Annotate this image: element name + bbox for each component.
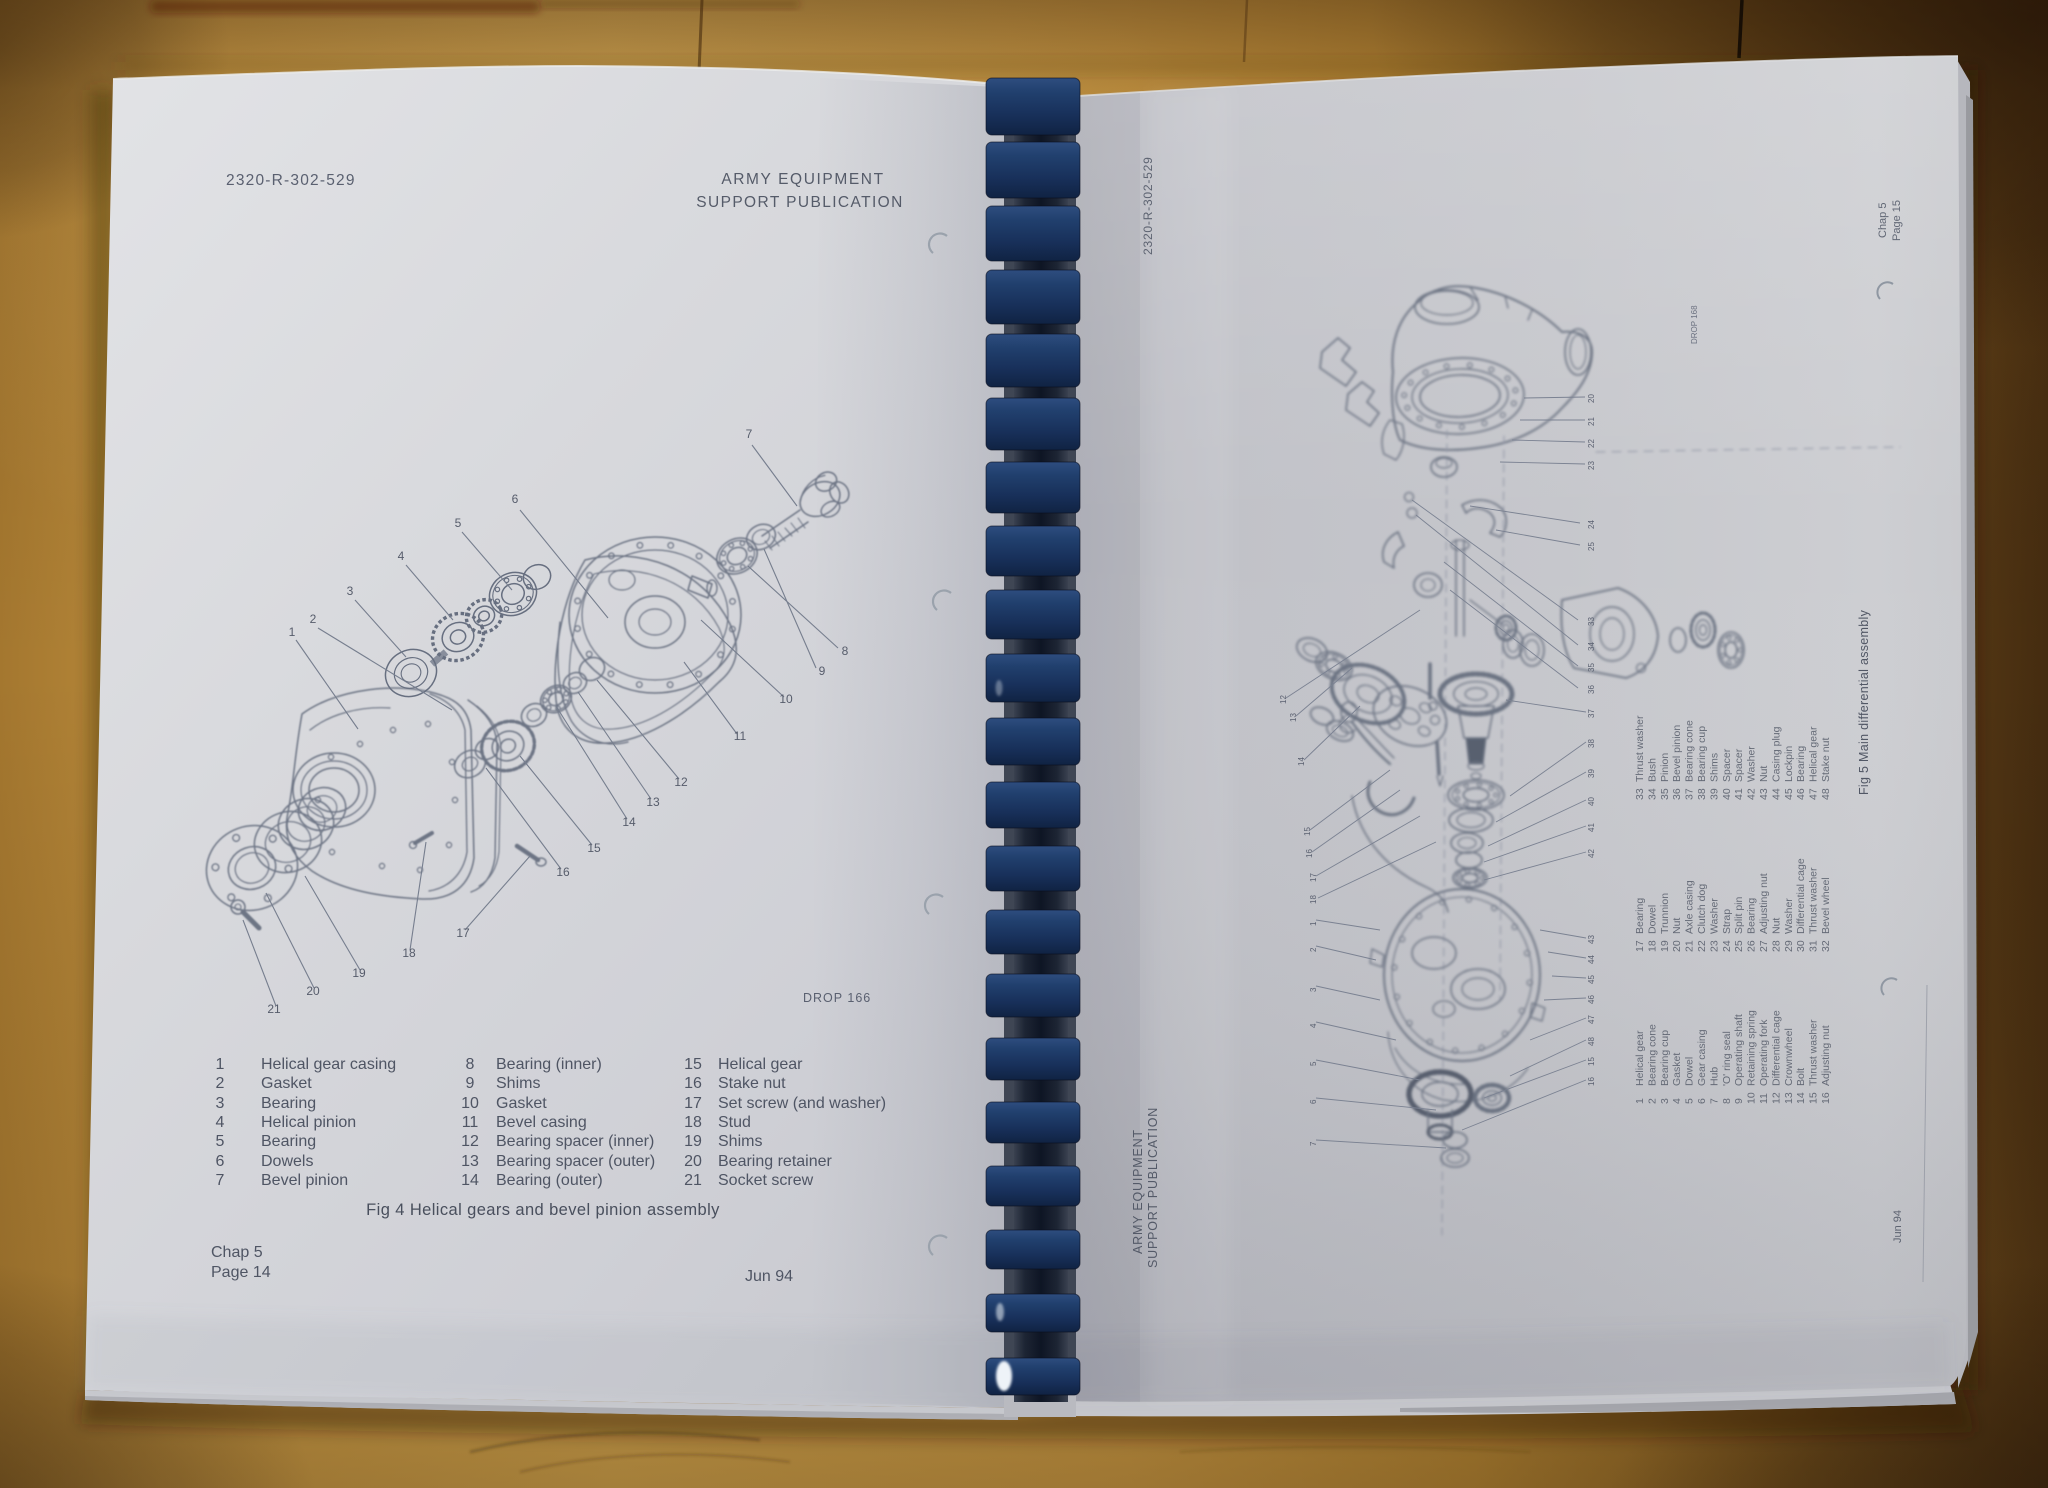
svg-text:24: 24 <box>1721 940 1733 952</box>
svg-text:41: 41 <box>1587 823 1596 832</box>
svg-text:30: 30 <box>1795 940 1807 952</box>
svg-text:39: 39 <box>1587 769 1596 778</box>
svg-text:Set screw (and washer): Set screw (and washer) <box>718 1095 886 1112</box>
svg-text:33: 33 <box>1634 788 1646 800</box>
svg-text:Washer: Washer <box>1708 898 1720 934</box>
svg-text:ARMY EQUIPMENT: ARMY EQUIPMENT <box>1131 1129 1145 1254</box>
svg-text:Split pin: Split pin <box>1733 896 1745 934</box>
svg-text:13: 13 <box>1289 713 1298 722</box>
svg-text:Bearing cone: Bearing cone <box>1684 720 1696 782</box>
svg-text:25: 25 <box>1733 940 1745 952</box>
svg-text:13: 13 <box>1783 1092 1795 1104</box>
svg-text:Clutch dog: Clutch dog <box>1696 884 1708 934</box>
svg-text:Page 15: Page 15 <box>1891 200 1903 241</box>
svg-text:Differential cage: Differential cage <box>1795 858 1807 934</box>
svg-text:21: 21 <box>1587 417 1596 426</box>
svg-text:7: 7 <box>1309 1141 1318 1146</box>
svg-text:11: 11 <box>1758 1093 1770 1104</box>
svg-text:43: 43 <box>1758 788 1770 800</box>
svg-text:Bevel pinion: Bevel pinion <box>1671 725 1683 782</box>
svg-text:12: 12 <box>461 1133 479 1150</box>
svg-text:Bearing cup: Bearing cup <box>1659 1030 1671 1086</box>
svg-text:Chap 5: Chap 5 <box>1877 203 1889 238</box>
svg-text:19: 19 <box>684 1133 702 1150</box>
svg-text:DROP 166: DROP 166 <box>803 991 871 1005</box>
svg-text:6: 6 <box>1309 1099 1318 1104</box>
svg-text:Dowel: Dowel <box>1646 905 1658 934</box>
svg-text:Thrust washer: Thrust washer <box>1634 715 1646 782</box>
svg-text:6: 6 <box>512 492 519 506</box>
svg-text:6: 6 <box>216 1153 225 1170</box>
svg-text:Spacer: Spacer <box>1733 748 1745 782</box>
svg-text:Operating fork: Operating fork <box>1758 1019 1770 1086</box>
svg-text:31: 31 <box>1808 940 1820 952</box>
svg-text:8: 8 <box>466 1056 475 1073</box>
svg-text:4: 4 <box>1309 1023 1318 1028</box>
svg-text:Jun 94: Jun 94 <box>745 1268 793 1285</box>
svg-text:Bevel wheel: Bevel wheel <box>1820 877 1832 934</box>
svg-text:Bearing retainer: Bearing retainer <box>718 1153 833 1170</box>
svg-text:Axle casing: Axle casing <box>1684 880 1696 934</box>
svg-text:Bevel casing: Bevel casing <box>496 1114 587 1131</box>
svg-text:Spacer: Spacer <box>1721 748 1733 782</box>
svg-text:28: 28 <box>1770 940 1782 952</box>
svg-text:20: 20 <box>306 984 320 998</box>
svg-text:8: 8 <box>1721 1098 1733 1104</box>
svg-text:12: 12 <box>1279 695 1288 704</box>
svg-text:45: 45 <box>1783 788 1795 800</box>
svg-text:10: 10 <box>1746 1092 1758 1104</box>
svg-text:3: 3 <box>1309 987 1318 992</box>
svg-text:10: 10 <box>461 1095 479 1112</box>
svg-text:Nut: Nut <box>1758 766 1770 782</box>
svg-text:Bearing (outer): Bearing (outer) <box>496 1172 603 1189</box>
svg-text:19: 19 <box>352 966 366 980</box>
svg-text:Shims: Shims <box>1708 753 1720 782</box>
svg-text:Stud: Stud <box>718 1114 751 1131</box>
svg-text:22: 22 <box>1587 439 1596 448</box>
svg-text:38: 38 <box>1587 739 1596 748</box>
svg-text:13: 13 <box>461 1153 479 1170</box>
svg-text:8: 8 <box>842 644 849 658</box>
svg-text:Retaining spring: Retaining spring <box>1746 1010 1758 1086</box>
svg-text:17: 17 <box>684 1095 702 1112</box>
svg-text:Helical pinion: Helical pinion <box>261 1114 356 1131</box>
svg-text:40: 40 <box>1587 797 1596 806</box>
svg-text:Bearing: Bearing <box>1746 898 1758 934</box>
svg-text:Bearing (inner): Bearing (inner) <box>496 1056 602 1073</box>
svg-text:Strap: Strap <box>1721 909 1733 934</box>
svg-text:18: 18 <box>402 946 416 960</box>
svg-text:45: 45 <box>1587 975 1596 984</box>
svg-text:Helical gear casing: Helical gear casing <box>261 1056 396 1073</box>
svg-text:11: 11 <box>734 729 747 743</box>
svg-text:Bearing: Bearing <box>1634 898 1646 934</box>
svg-text:3: 3 <box>216 1095 225 1112</box>
svg-text:37: 37 <box>1684 788 1696 800</box>
svg-text:21: 21 <box>267 1002 281 1016</box>
svg-text:Lockpin: Lockpin <box>1783 746 1795 782</box>
svg-text:20: 20 <box>1587 394 1596 403</box>
svg-text:36: 36 <box>1671 788 1683 800</box>
svg-text:Fig 5 Main differential assem: Fig 5 Main differential assembly <box>1857 609 1871 795</box>
svg-text:17: 17 <box>1309 873 1318 882</box>
svg-text:44: 44 <box>1587 955 1596 964</box>
svg-text:5: 5 <box>216 1133 225 1150</box>
svg-text:DROP 168: DROP 168 <box>1690 305 1699 344</box>
svg-text:Stake nut: Stake nut <box>1820 738 1832 782</box>
svg-text:Washer: Washer <box>1783 898 1795 934</box>
svg-text:2: 2 <box>1309 947 1318 952</box>
svg-text:Nut: Nut <box>1671 918 1683 934</box>
svg-text:14: 14 <box>1297 757 1306 766</box>
svg-text:Stake nut: Stake nut <box>718 1075 786 1092</box>
svg-text:Fig 4 Helical gears and bevel: Fig 4 Helical gears and bevel pinion ass… <box>366 1201 720 1219</box>
svg-text:14: 14 <box>1795 1092 1807 1104</box>
svg-text:5: 5 <box>1309 1061 1318 1066</box>
svg-text:37: 37 <box>1587 709 1596 718</box>
svg-text:16: 16 <box>556 865 570 879</box>
svg-text:Bearing: Bearing <box>261 1095 316 1112</box>
svg-text:Gasket: Gasket <box>1671 1053 1683 1086</box>
svg-text:Washer: Washer <box>1746 746 1758 782</box>
svg-text:Gasket: Gasket <box>496 1095 547 1112</box>
svg-text:Bearing: Bearing <box>1795 746 1807 782</box>
svg-text:26: 26 <box>1746 940 1758 952</box>
svg-text:1: 1 <box>1309 921 1318 926</box>
svg-text:38: 38 <box>1696 788 1708 800</box>
svg-text:7: 7 <box>216 1172 225 1189</box>
svg-text:Bolt: Bolt <box>1795 1068 1807 1086</box>
svg-text:29: 29 <box>1783 940 1795 952</box>
svg-text:23: 23 <box>1708 940 1720 952</box>
svg-text:15: 15 <box>587 841 601 855</box>
svg-text:Chap 5: Chap 5 <box>211 1244 263 1261</box>
svg-text:Helical gear: Helical gear <box>1808 726 1820 782</box>
svg-text:15: 15 <box>684 1056 702 1073</box>
svg-text:16: 16 <box>1820 1092 1832 1104</box>
svg-text:Bearing spacer (outer): Bearing spacer (outer) <box>496 1153 655 1170</box>
svg-text:34: 34 <box>1587 642 1596 651</box>
svg-text:27: 27 <box>1758 940 1770 952</box>
svg-text:42: 42 <box>1746 788 1758 800</box>
svg-text:35: 35 <box>1659 788 1671 800</box>
svg-text:Pinion: Pinion <box>1659 753 1671 782</box>
svg-text:14: 14 <box>461 1172 479 1189</box>
svg-text:10: 10 <box>779 692 793 706</box>
svg-text:16: 16 <box>684 1075 702 1092</box>
svg-text:2: 2 <box>1646 1098 1658 1104</box>
svg-text:Thrust washer: Thrust washer <box>1808 867 1820 934</box>
svg-text:43: 43 <box>1587 935 1596 944</box>
svg-text:Crownwheel: Crownwheel <box>1783 1028 1795 1086</box>
svg-text:17: 17 <box>1634 940 1646 952</box>
svg-text:Gear casing: Gear casing <box>1696 1029 1708 1086</box>
svg-text:3: 3 <box>1659 1098 1671 1104</box>
svg-text:39: 39 <box>1708 788 1720 800</box>
svg-text:11: 11 <box>462 1114 479 1131</box>
svg-text:9: 9 <box>1733 1098 1745 1104</box>
svg-text:7: 7 <box>1708 1098 1720 1104</box>
svg-text:21: 21 <box>1684 940 1696 952</box>
svg-text:4: 4 <box>216 1114 225 1131</box>
svg-text:Casing plug: Casing plug <box>1770 726 1782 782</box>
svg-text:7: 7 <box>746 427 753 441</box>
svg-text:46: 46 <box>1587 995 1596 1004</box>
svg-text:Shims: Shims <box>718 1133 762 1150</box>
svg-text:47: 47 <box>1587 1015 1596 1024</box>
svg-text:Gasket: Gasket <box>261 1075 312 1092</box>
svg-text:Adjusting nut: Adjusting nut <box>1820 1025 1832 1086</box>
svg-text:Adjusting nut: Adjusting nut <box>1758 873 1770 934</box>
svg-text:Helical gear: Helical gear <box>718 1056 803 1073</box>
svg-text:35: 35 <box>1587 663 1596 672</box>
svg-text:15: 15 <box>1808 1092 1820 1104</box>
svg-text:5: 5 <box>1684 1098 1696 1104</box>
svg-text:Thrust washer: Thrust washer <box>1808 1019 1820 1086</box>
svg-text:Dowel: Dowel <box>1684 1057 1696 1086</box>
svg-text:Differential cage: Differential cage <box>1770 1010 1782 1086</box>
svg-text:2320-R-302-529: 2320-R-302-529 <box>226 172 356 189</box>
svg-text:1: 1 <box>216 1056 225 1073</box>
svg-text:3: 3 <box>347 584 354 598</box>
svg-text:Bush: Bush <box>1646 758 1658 782</box>
svg-text:5: 5 <box>455 516 462 530</box>
svg-text:9: 9 <box>819 664 826 678</box>
svg-text:Nut: Nut <box>1770 918 1782 934</box>
svg-text:20: 20 <box>1671 940 1683 952</box>
svg-text:4: 4 <box>398 549 405 563</box>
svg-text:19: 19 <box>1659 940 1671 952</box>
svg-text:18: 18 <box>1646 940 1658 952</box>
svg-text:Socket screw: Socket screw <box>718 1172 814 1189</box>
svg-text:24: 24 <box>1587 520 1596 529</box>
svg-text:23: 23 <box>1587 461 1596 470</box>
svg-text:Page 14: Page 14 <box>211 1264 271 1281</box>
svg-text:16: 16 <box>1587 1077 1596 1086</box>
svg-text:36: 36 <box>1587 685 1596 694</box>
svg-text:32: 32 <box>1820 940 1832 952</box>
svg-text:Bearing cup: Bearing cup <box>1696 726 1708 782</box>
svg-text:15: 15 <box>1587 1057 1596 1066</box>
svg-text:Bearing: Bearing <box>261 1133 316 1150</box>
svg-text:42: 42 <box>1587 849 1596 858</box>
svg-text:SUPPORT PUBLICATION: SUPPORT PUBLICATION <box>696 194 903 211</box>
svg-text:44: 44 <box>1770 788 1782 800</box>
svg-text:18: 18 <box>684 1114 702 1131</box>
svg-text:21: 21 <box>684 1172 702 1189</box>
svg-text:ARMY EQUIPMENT: ARMY EQUIPMENT <box>721 171 884 188</box>
svg-text:25: 25 <box>1587 542 1596 551</box>
svg-text:14: 14 <box>622 815 636 829</box>
svg-text:Hub: Hub <box>1708 1067 1720 1086</box>
svg-text:Bearing spacer (inner): Bearing spacer (inner) <box>496 1133 654 1150</box>
svg-text:Dowels: Dowels <box>261 1153 313 1170</box>
svg-text:18: 18 <box>1309 895 1318 904</box>
svg-text:SUPPORT PUBLICATION: SUPPORT PUBLICATION <box>1146 1107 1160 1268</box>
svg-text:15: 15 <box>1303 827 1312 836</box>
svg-text:4: 4 <box>1671 1098 1683 1104</box>
svg-text:9: 9 <box>466 1075 475 1092</box>
svg-text:Trunnion: Trunnion <box>1659 893 1671 934</box>
svg-text:1: 1 <box>1634 1098 1646 1104</box>
svg-text:22: 22 <box>1696 940 1708 952</box>
svg-text:'O' ring seal: 'O' ring seal <box>1721 1031 1733 1086</box>
svg-text:Helical gear: Helical gear <box>1634 1030 1646 1086</box>
svg-text:34: 34 <box>1646 788 1658 800</box>
svg-text:Bearing cone: Bearing cone <box>1646 1024 1658 1086</box>
svg-text:12: 12 <box>674 775 688 789</box>
svg-text:46: 46 <box>1795 788 1807 800</box>
svg-text:12: 12 <box>1770 1092 1782 1104</box>
svg-text:40: 40 <box>1721 788 1733 800</box>
svg-text:6: 6 <box>1696 1098 1708 1104</box>
svg-text:Operating shaft: Operating shaft <box>1733 1014 1745 1086</box>
svg-text:2: 2 <box>310 612 317 626</box>
svg-text:17: 17 <box>456 926 470 940</box>
svg-text:13: 13 <box>646 795 660 809</box>
svg-text:48: 48 <box>1587 1037 1596 1046</box>
svg-text:1: 1 <box>289 625 296 639</box>
svg-text:Shims: Shims <box>496 1075 540 1092</box>
svg-text:41: 41 <box>1733 788 1745 800</box>
svg-text:48: 48 <box>1820 788 1832 800</box>
svg-text:Jun 94: Jun 94 <box>1892 1210 1904 1243</box>
svg-text:20: 20 <box>684 1153 702 1170</box>
svg-text:Bevel pinion: Bevel pinion <box>261 1172 348 1189</box>
svg-text:33: 33 <box>1587 617 1596 626</box>
svg-text:47: 47 <box>1808 788 1820 800</box>
svg-text:2: 2 <box>216 1075 225 1092</box>
svg-text:2320-R-302-529: 2320-R-302-529 <box>1141 156 1155 255</box>
svg-text:16: 16 <box>1305 849 1314 858</box>
